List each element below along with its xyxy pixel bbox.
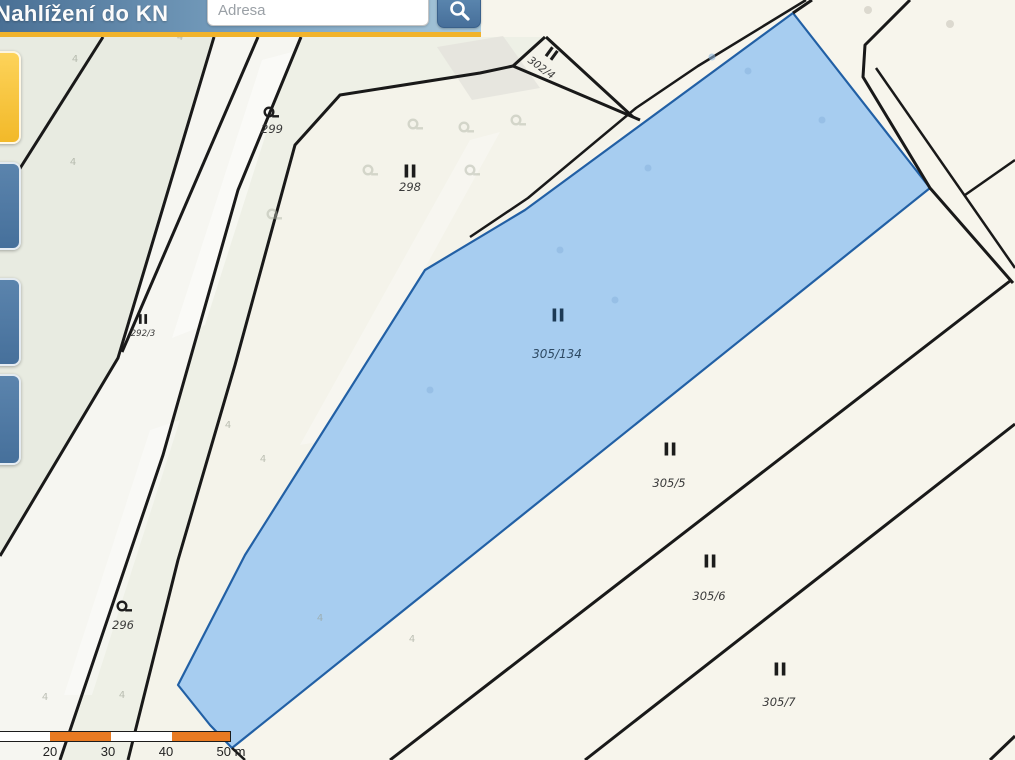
- parcel-label-296: 296: [112, 618, 134, 632]
- parcel-label-292-3: 292/3: [131, 329, 156, 339]
- tool-button-highlight[interactable]: [0, 51, 21, 144]
- tool-button-3[interactable]: [0, 374, 21, 465]
- svg-text:4: 4: [70, 157, 76, 168]
- tool-button-2[interactable]: [0, 278, 21, 366]
- parcel-label-305-5: 305/5: [652, 476, 685, 490]
- svg-text:4: 4: [409, 634, 415, 645]
- scalebar-segment: [172, 732, 230, 741]
- scalebar-label: 30: [101, 744, 115, 759]
- magnifier-icon: [448, 0, 471, 22]
- parcel-label-299: 299: [261, 122, 283, 136]
- scalebar-segments: [0, 731, 231, 742]
- search-button[interactable]: [437, 0, 481, 28]
- scalebar-segment: [111, 732, 172, 741]
- tool-button-1[interactable]: [0, 162, 21, 250]
- scalebar-segment: [0, 732, 50, 741]
- scalebar-label: 20: [43, 744, 57, 759]
- scalebar-label: 40: [159, 744, 173, 759]
- parcel-label-298: 298: [399, 180, 421, 194]
- map-scalebar: 20 30 40 50 m: [0, 731, 320, 760]
- svg-text:4: 4: [260, 454, 266, 465]
- parcel-label-305-134: 305/134: [532, 347, 582, 361]
- cadastral-map-canvas[interactable]: 4 4 4 4 4 4 4 4 4 299 298: [0, 0, 1015, 760]
- svg-text:4: 4: [119, 690, 125, 701]
- svg-text:4: 4: [72, 54, 78, 65]
- address-search-input[interactable]: [207, 0, 429, 26]
- app-title: Nahlížení do KN: [0, 1, 168, 27]
- scalebar-label: 50 m: [217, 744, 246, 759]
- svg-text:4: 4: [317, 613, 323, 624]
- svg-text:4: 4: [42, 692, 48, 703]
- scalebar-segment: [50, 732, 111, 741]
- svg-text:4: 4: [225, 420, 231, 431]
- parcel-label-305-7: 305/7: [762, 695, 796, 709]
- app-window: 4 4 4 4 4 4 4 4 4 299 298: [0, 0, 1015, 760]
- header-bar: Nahlížení do KN: [0, 0, 481, 37]
- parcel-label-305-6: 305/6: [692, 589, 725, 603]
